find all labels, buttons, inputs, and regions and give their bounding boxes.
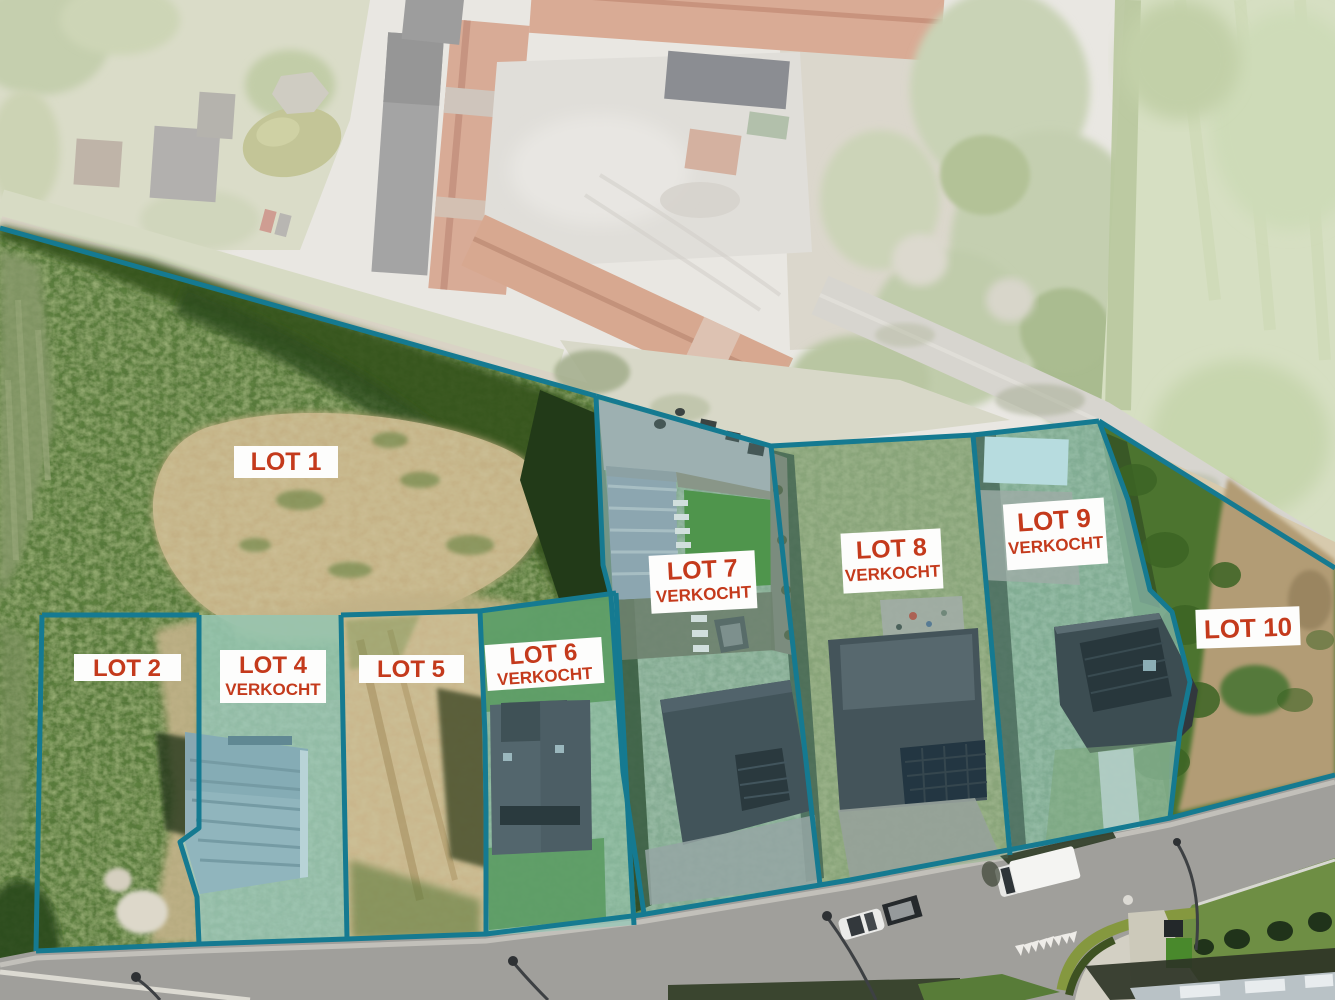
svg-text:LOT 9: LOT 9: [1016, 503, 1092, 538]
svg-text:LOT 8: LOT 8: [855, 533, 927, 565]
svg-text:VERKOCHT: VERKOCHT: [225, 680, 321, 699]
svg-text:LOT 4: LOT 4: [239, 652, 308, 679]
svg-text:LOT 5: LOT 5: [377, 656, 445, 683]
svg-text:LOT 1: LOT 1: [251, 448, 322, 476]
svg-text:LOT 2: LOT 2: [93, 655, 161, 682]
svg-text:LOT 10: LOT 10: [1203, 611, 1292, 644]
svg-text:LOT 7: LOT 7: [666, 554, 738, 586]
